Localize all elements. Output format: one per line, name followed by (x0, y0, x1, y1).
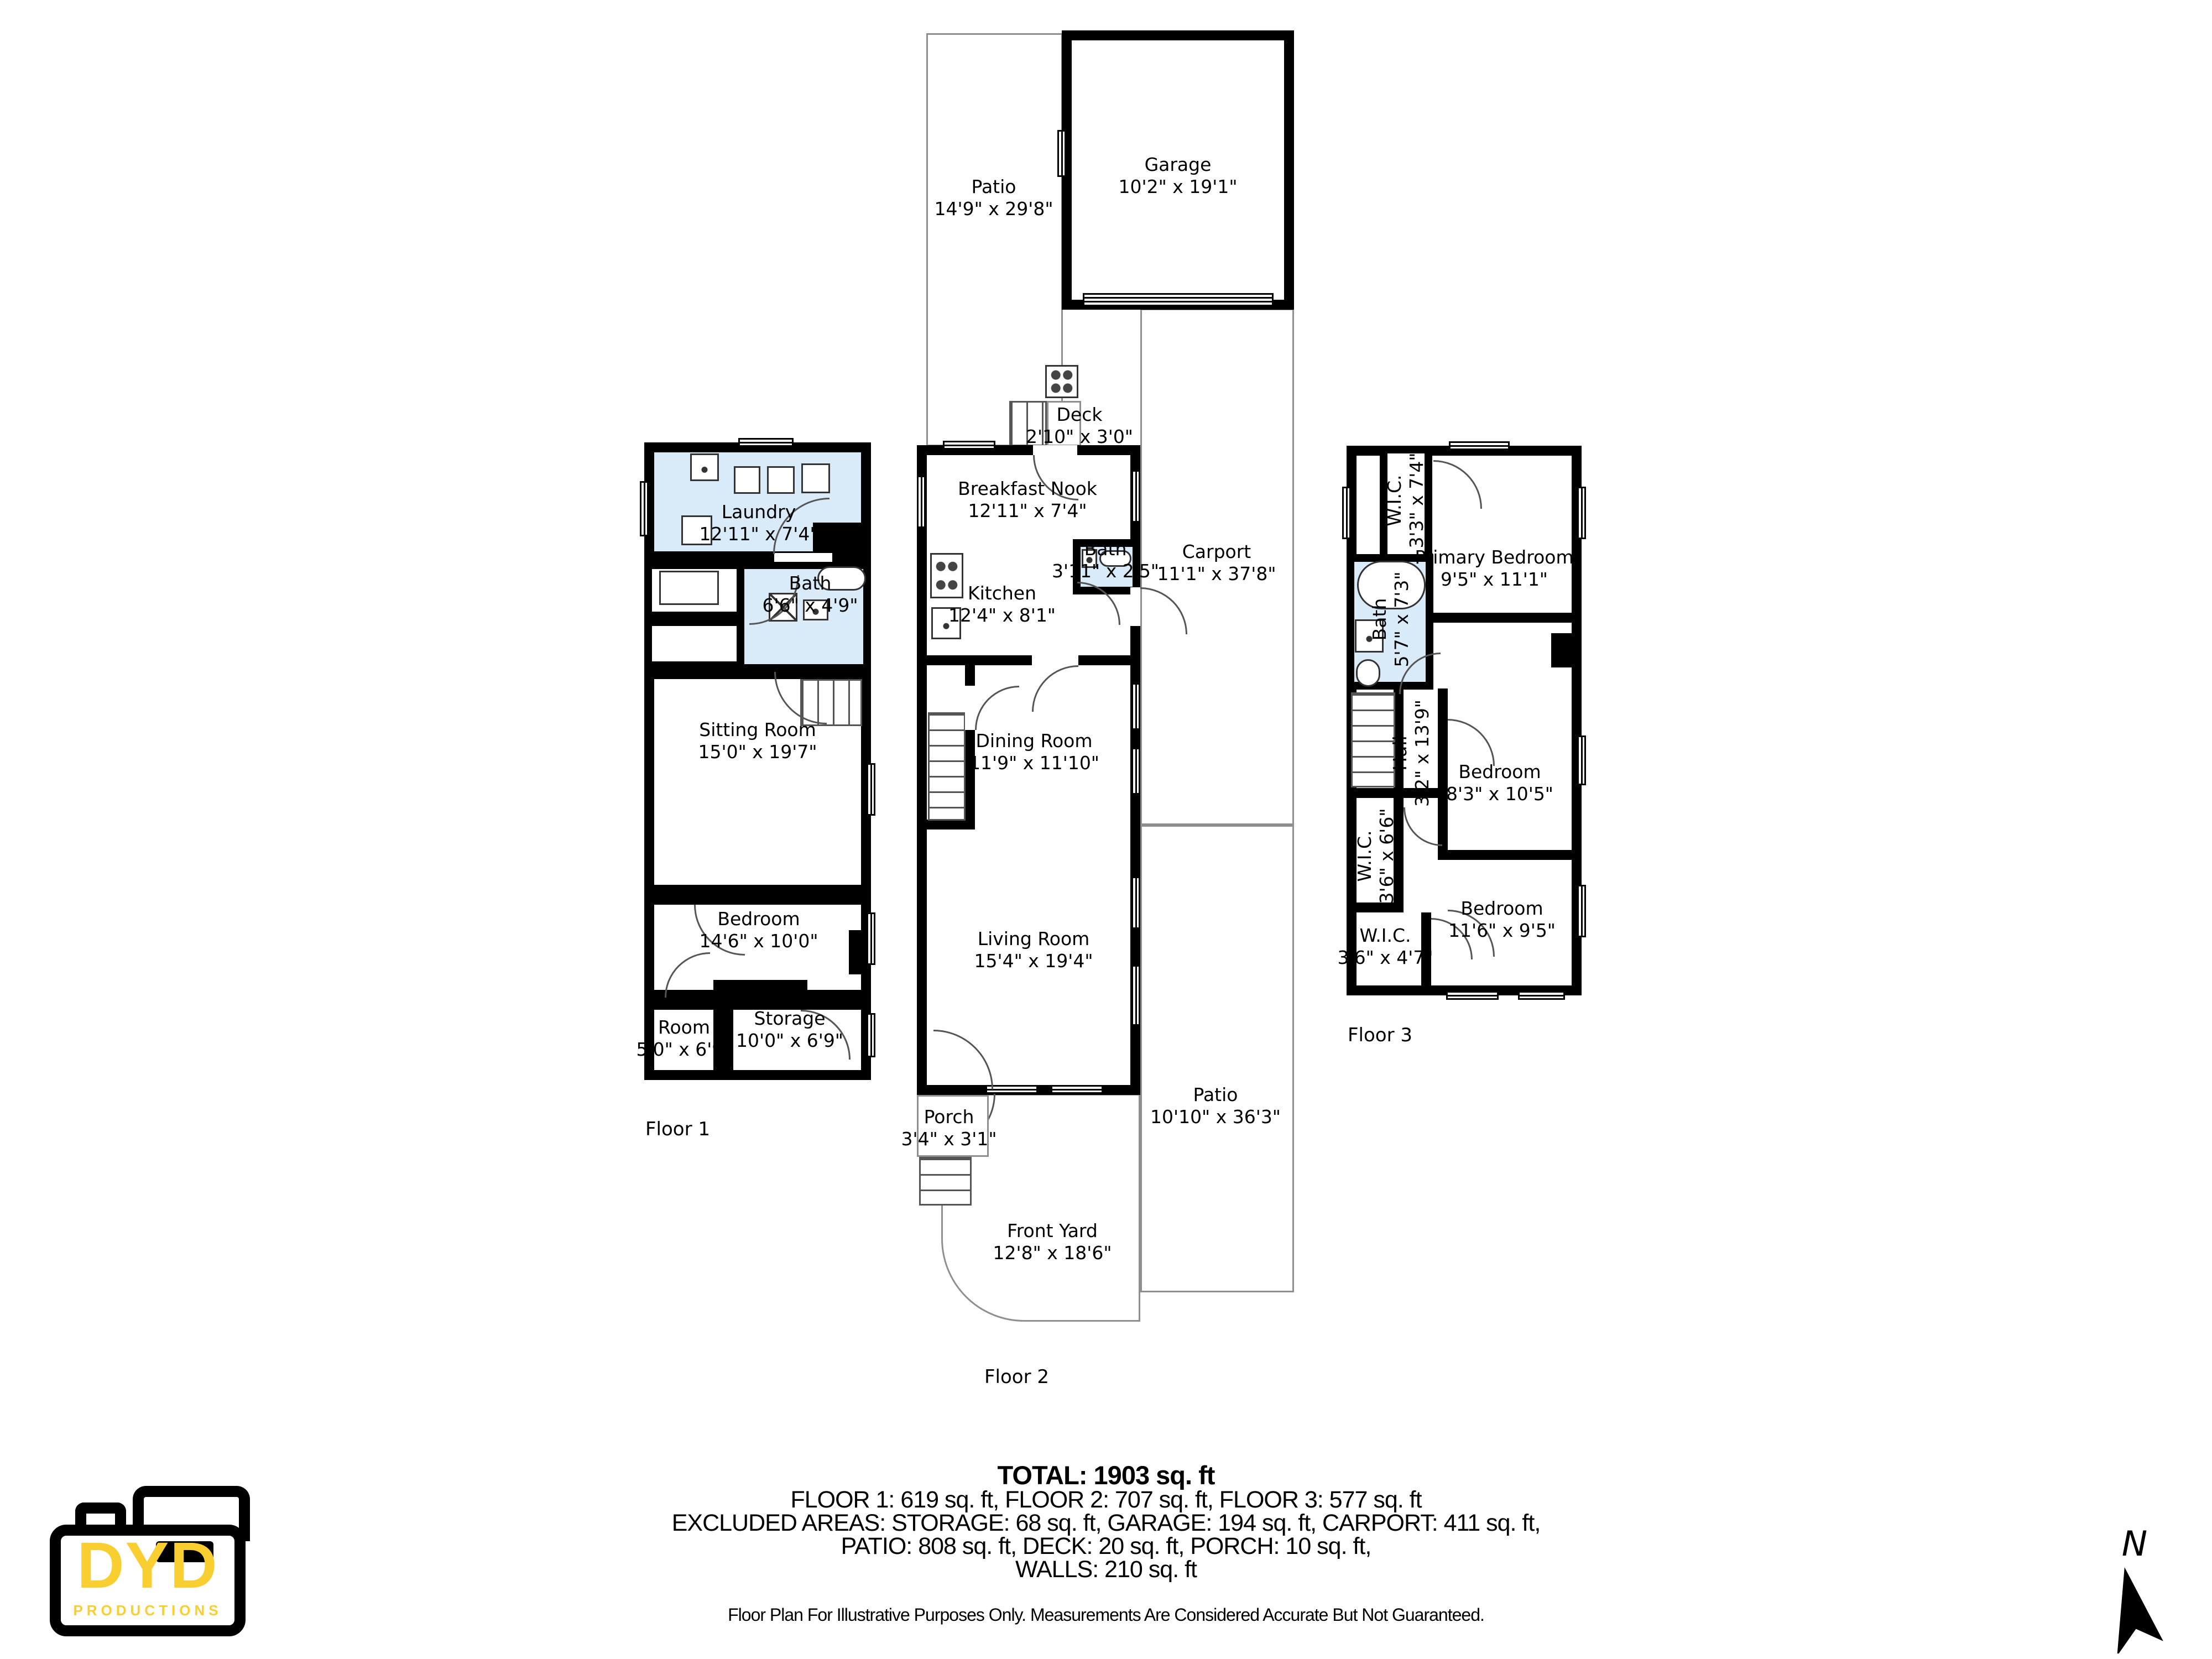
logo-brand-text: DYD (50, 1532, 246, 1599)
floor3-window-bedmid (1577, 735, 1586, 785)
primary-bottom-wall (1433, 613, 1582, 623)
dining-name: Dining Room (969, 730, 1099, 752)
closet-shelf-icon (659, 571, 719, 605)
summary-total: TOTAL: 1903 sq. ft (0, 1460, 2212, 1490)
wic-mid-dims: 3'6" x 6'6" (1376, 808, 1398, 904)
porch-stairs (919, 1157, 972, 1206)
patio-front-dims: 10'10" x 36'3" (1150, 1106, 1281, 1128)
floor2-window-front2 (1051, 1085, 1103, 1094)
breakfast-dims: 12'11" x 7'4" (958, 500, 1097, 522)
floor2-window-top (943, 441, 995, 450)
wic-bottom-label: W.I.C. 3'6" x 4'7" (1338, 925, 1433, 969)
patio-back-name: Patio (935, 176, 1053, 198)
breakfast-nook-label: Breakfast Nook 12'11" x 7'4" (958, 478, 1097, 522)
grill-icon (1045, 365, 1078, 398)
floor1-window-top (738, 438, 794, 447)
wic-top-dims: 3'3" x 7'4" (1406, 453, 1428, 549)
living-room-label: Living Room 15'4" x 19'4" (974, 928, 1093, 972)
front-yard-label: Front Yard 12'8" x 18'6" (993, 1220, 1112, 1264)
dining-dims: 11'9" x 11'10" (969, 752, 1099, 774)
floor2-window-dining1 (1131, 683, 1140, 730)
washer-icon (734, 466, 760, 494)
laundry-door-gap (774, 553, 832, 562)
floor1-bath-name: Bath (763, 572, 858, 594)
dyd-productions-logo: DYD PRODUCTIONS (50, 1485, 249, 1642)
living-name: Living Room (974, 928, 1093, 950)
floor2-window-living1 (1131, 877, 1140, 929)
floor1-window-bedroom (867, 912, 875, 965)
dryer-icon (767, 466, 795, 494)
floor1-window-left (640, 481, 649, 536)
patio-back-dims: 14'9" x 29'8" (935, 198, 1053, 220)
bedroom-mid-name: Bedroom (1446, 761, 1553, 783)
wic-bottom-name: W.I.C. (1338, 925, 1433, 947)
bedroom-bottom-label: Bedroom 11'6" x 9'5" (1448, 898, 1556, 942)
north-compass: N (2090, 1524, 2179, 1645)
summary-walls: WALLS: 210 sq. ft (0, 1556, 2212, 1583)
storage-name: Storage (736, 1008, 843, 1030)
floor3-window-bedbottom (1577, 885, 1586, 937)
sitting-room-label: Sitting Room 15'0" x 19'7" (698, 719, 817, 763)
porch-dims: 3'4" x 3'1" (901, 1128, 997, 1150)
bedroom-bottom-name: Bedroom (1448, 898, 1556, 920)
carport-name: Carport (1157, 541, 1276, 563)
primary-dims: 9'5" x 11'1" (1415, 568, 1573, 591)
laundry-unit-icon (801, 463, 830, 493)
wic-mid-name: W.I.C. (1354, 808, 1376, 904)
deck-dims: 2'10" x 3'0" (1026, 426, 1133, 448)
laundry-label: Laundry 12'11" x 7'4" (700, 501, 818, 545)
wic-top-name: W.I.C. (1384, 453, 1406, 549)
floor1-bedroom-label: Bedroom 14'6" x 10'0" (700, 908, 818, 952)
closet-bottom (644, 618, 747, 669)
patio-back-area (926, 33, 1063, 446)
dining-door-gap (1032, 655, 1078, 665)
floor3-bath-label: Bath 5'7" x 7'3" (1369, 572, 1413, 667)
patio-back-label: Patio 14'9" x 29'8" (935, 176, 1053, 220)
bedrooms-divider-wall (1438, 850, 1582, 860)
living-dims: 15'4" x 19'4" (974, 950, 1093, 972)
porch-name: Porch (901, 1106, 997, 1128)
laundry-name: Laundry (700, 501, 818, 523)
floor2-window-dining2 (1131, 748, 1140, 795)
floor2-bath-label: Bath 3'11" x 2'5" (1052, 538, 1159, 582)
floor2-caption: Floor 2 (984, 1366, 1049, 1388)
bedroom-bottom-dims: 11'6" x 9'5" (1448, 920, 1556, 942)
floor2-wall-nook-dining (917, 655, 1140, 665)
carport-dims: 11'1" x 37'8" (1157, 563, 1276, 585)
primary-name: Primary Bedroom (1415, 546, 1573, 568)
floor3-window-left (1342, 487, 1351, 539)
floor2-bath-name: Bath (1052, 538, 1159, 560)
dining-room-label: Dining Room 11'9" x 11'10" (969, 730, 1099, 774)
floor3-window-primary (1577, 487, 1586, 539)
carport-label: Carport 11'1" x 37'8" (1157, 541, 1276, 585)
sitting-name: Sitting Room (698, 719, 817, 741)
patio-front-name: Patio (1150, 1084, 1281, 1106)
small-room-label: Room 5'0" x 6'9" (637, 1016, 732, 1061)
primary-bedroom-label: Primary Bedroom 9'5" x 11'1" (1415, 546, 1573, 591)
hall-dims: 3'2" x 13'9" (1411, 700, 1433, 807)
floor3-window-bottom1 (1446, 991, 1499, 1000)
floor3-right-notch (1551, 633, 1582, 667)
kitchen-dining-gap (965, 686, 975, 730)
bedroom-mid-label: Bedroom 8'3" x 10'5" (1446, 761, 1553, 805)
hall-name: Hall (1389, 700, 1411, 807)
storage-label: Storage 10'0" x 6'9" (736, 1008, 843, 1052)
front-yard-name: Front Yard (993, 1220, 1112, 1242)
floor1-bath-dims: 6'6" x 4'9" (763, 594, 858, 617)
logo-sub-text: PRODUCTIONS (50, 1602, 246, 1619)
wic-top-label: W.I.C. 3'3" x 7'4" (1384, 453, 1428, 549)
small-room-name: Room (637, 1016, 732, 1039)
floor1-bedroom-dims: 14'6" x 10'0" (700, 930, 818, 952)
storage-dims: 10'0" x 6'9" (736, 1030, 843, 1052)
floor3-bath-dims: 5'7" x 7'3" (1391, 572, 1413, 667)
floor2-window-nook (1131, 470, 1140, 523)
floor1-bedroom-name: Bedroom (700, 908, 818, 930)
floor2-wall-stairs-bottom (917, 820, 975, 830)
floor3-stairs (1351, 692, 1395, 787)
floor1-bedroom-wall-filler (713, 980, 807, 1000)
porch-label: Porch 3'4" x 3'1" (901, 1106, 997, 1150)
floor1-window-sitting (867, 763, 875, 816)
carport-door-gap (1130, 587, 1140, 626)
floor1-caption: Floor 1 (645, 1118, 710, 1140)
bedroom-mid-dims: 8'3" x 10'5" (1446, 783, 1553, 805)
wic-bottom-dims: 3'6" x 4'7" (1338, 947, 1433, 969)
kitchen-name: Kitchen (948, 582, 1056, 604)
floor2-stairs (928, 712, 966, 821)
floor3-window-top (1449, 441, 1510, 450)
breakfast-name: Breakfast Nook (958, 478, 1097, 500)
floor2-window-living2 (1131, 965, 1140, 1026)
north-arrow-icon (2090, 1565, 2173, 1653)
wic-mid-bottom-wall (1347, 902, 1402, 912)
garage-window (1057, 130, 1066, 177)
north-label: N (2122, 1524, 2147, 1564)
patio-front-label: Patio 10'10" x 36'3" (1150, 1084, 1281, 1128)
deck-name: Deck (1026, 404, 1133, 426)
disclaimer-text: Floor Plan For Illustrative Purposes Onl… (0, 1605, 2212, 1625)
floor2-window-left (917, 476, 926, 528)
kitchen-label: Kitchen 12'4" x 8'1" (948, 582, 1056, 627)
front-yard-dims: 12'8" x 18'6" (993, 1242, 1112, 1264)
floor2-bath-dims: 3'11" x 2'5" (1052, 560, 1159, 582)
deck-label: Deck 2'10" x 3'0" (1026, 404, 1133, 448)
floor3-caption: Floor 3 (1348, 1024, 1412, 1046)
small-room-dims: 5'0" x 6'9" (637, 1039, 732, 1061)
floor2-window-front1 (985, 1085, 1038, 1094)
floor3-window-bottom2 (1518, 991, 1565, 1000)
floor1-window-storage (867, 1013, 875, 1057)
floor3-bath-name: Bath (1369, 572, 1391, 667)
floor1-bath-label: Bath 6'6" x 4'9" (763, 572, 858, 617)
laundry-dims: 12'11" x 7'4" (700, 523, 818, 545)
sitting-dims: 15'0" x 19'7" (698, 741, 817, 763)
garage-label: Garage 10'2" x 19'1" (1119, 154, 1238, 198)
kitchen-dims: 12'4" x 8'1" (948, 604, 1056, 627)
garage-door (1083, 293, 1274, 307)
hall-label: Hall 3'2" x 13'9" (1389, 700, 1433, 807)
laundry-sink-fixture (690, 453, 719, 481)
wic-mid-label: W.I.C. 3'6" x 6'6" (1354, 808, 1398, 904)
patio-front-area (1140, 825, 1294, 1292)
garage-name: Garage (1119, 154, 1238, 176)
garage-dims: 10'2" x 19'1" (1119, 176, 1238, 198)
